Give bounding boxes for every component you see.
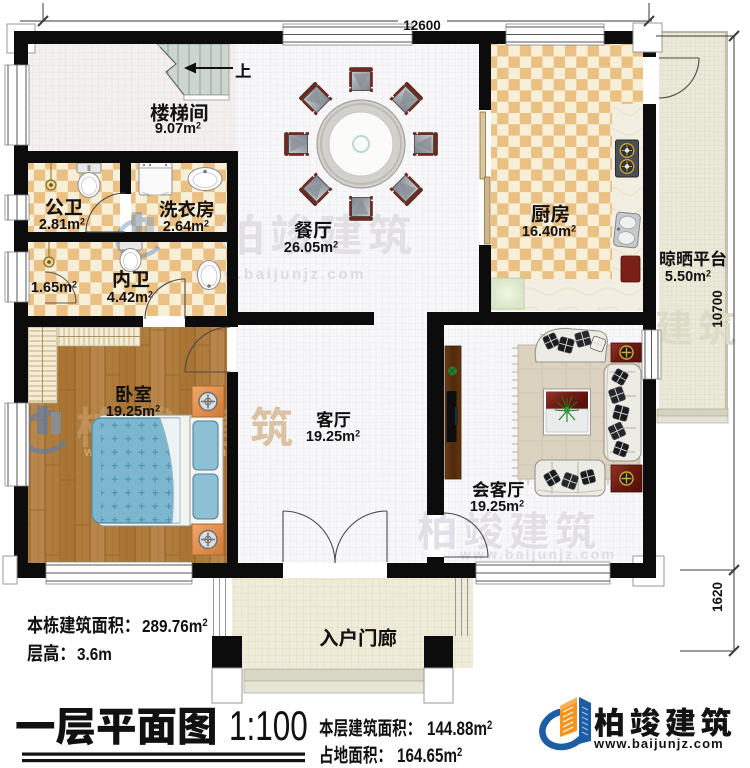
svg-text:www.baijunjz.com: www.baijunjz.com xyxy=(459,546,616,562)
svg-text:144.88m2: 144.88m2 xyxy=(427,717,492,739)
svg-text:4.42m2: 4.42m2 xyxy=(107,289,153,306)
svg-text:19.25m2: 19.25m2 xyxy=(106,403,160,420)
svg-text:12600: 12600 xyxy=(403,18,441,33)
svg-text:5.50m2: 5.50m2 xyxy=(665,268,711,285)
svg-text:16.40m2: 16.40m2 xyxy=(522,223,576,240)
svg-text:1.65m2: 1.65m2 xyxy=(31,279,77,296)
svg-text:9.07m2: 9.07m2 xyxy=(155,120,201,137)
svg-text:www.baijunjz.com: www.baijunjz.com xyxy=(593,736,724,751)
svg-text:1:100: 1:100 xyxy=(229,702,308,750)
svg-text:1620: 1620 xyxy=(710,582,725,612)
svg-text:3.6m: 3.6m xyxy=(77,644,112,664)
svg-text:19.25m2: 19.25m2 xyxy=(470,498,524,515)
svg-text:289.76m2: 289.76m2 xyxy=(142,616,208,636)
svg-text:164.65m2: 164.65m2 xyxy=(397,744,462,766)
svg-text:10700: 10700 xyxy=(710,290,725,328)
svg-text:26.05m2: 26.05m2 xyxy=(284,239,338,256)
svg-text:2.81m2: 2.81m2 xyxy=(39,216,85,233)
svg-text:19.25m2: 19.25m2 xyxy=(306,428,360,445)
